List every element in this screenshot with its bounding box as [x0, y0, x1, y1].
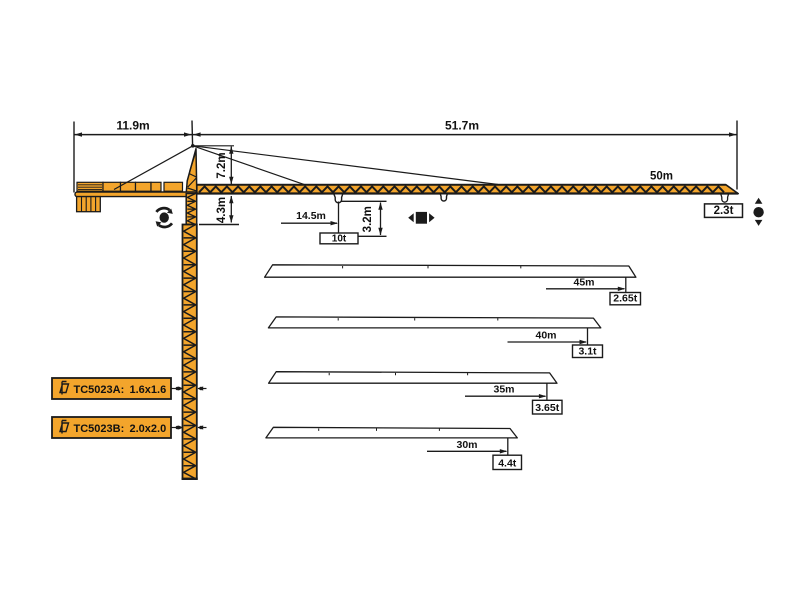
svg-text:2.3t: 2.3t — [714, 205, 734, 217]
svg-text:TC5023B: 2.0x2.0: TC5023B: 2.0x2.0 — [74, 423, 167, 435]
svg-text:51.7m: 51.7m — [445, 119, 479, 133]
svg-text:35m: 35m — [493, 384, 514, 396]
svg-text:7.2m: 7.2m — [216, 152, 228, 178]
svg-text:3.2m: 3.2m — [362, 206, 374, 232]
svg-text:2.65t: 2.65t — [613, 293, 637, 305]
svg-text:3.1t: 3.1t — [578, 345, 597, 357]
svg-text:30m: 30m — [456, 439, 477, 451]
svg-text:TC5023A: 1.6x1.6: TC5023A: 1.6x1.6 — [74, 384, 167, 396]
svg-text:11.9m: 11.9m — [116, 119, 149, 133]
svg-text:3.65t: 3.65t — [535, 402, 559, 414]
svg-text:50m: 50m — [650, 171, 673, 183]
svg-text:14.5m: 14.5m — [296, 210, 326, 222]
svg-text:4.3m: 4.3m — [216, 197, 228, 223]
svg-text:10t: 10t — [332, 233, 347, 244]
svg-text:45m: 45m — [573, 276, 594, 288]
svg-text:4.4t: 4.4t — [498, 457, 517, 469]
svg-text:40m: 40m — [535, 330, 556, 342]
